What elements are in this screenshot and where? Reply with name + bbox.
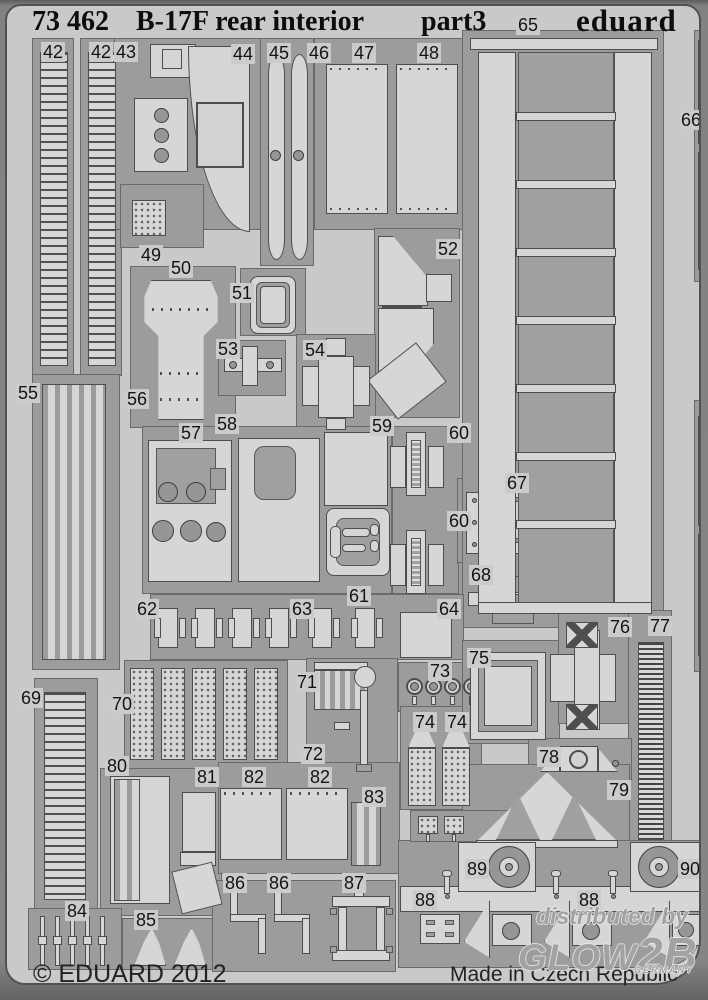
part-number-label: 56 xyxy=(125,389,149,409)
part-number-label: 54 xyxy=(303,340,327,360)
part-number-label: 60 xyxy=(447,511,471,531)
part-number-label: 71 xyxy=(295,672,319,692)
part-number-label: 66 xyxy=(679,110,701,130)
part-number-label: 42 xyxy=(41,42,65,62)
catalog-number: 73 462 xyxy=(32,6,109,38)
part-number-label: 74 xyxy=(413,712,437,732)
brand-logo: eduard xyxy=(576,3,677,39)
part-number-label: 51 xyxy=(230,283,254,303)
part-number-label: 86 xyxy=(267,873,291,893)
part-number-label: 80 xyxy=(105,756,129,776)
part-number-label: 69 xyxy=(19,688,43,708)
part-number-label: 63 xyxy=(290,599,314,619)
part-number-label: 78 xyxy=(537,747,561,767)
part-number-label: 86 xyxy=(223,873,247,893)
watermark-prefix: distributed by xyxy=(536,903,688,930)
part-number-label: 49 xyxy=(139,245,163,265)
part-number-label: 52 xyxy=(436,239,460,259)
part-number-label: 74 xyxy=(445,712,469,732)
part-number-label: 72 xyxy=(301,744,325,764)
part-number-labels: 4242434445464748656649505152535455565758… xyxy=(5,4,701,985)
part-number-label: 75 xyxy=(467,648,491,668)
part-number-label: 44 xyxy=(231,44,255,64)
part-number-label: 59 xyxy=(370,416,394,436)
part-number-label: 82 xyxy=(308,767,332,787)
part-number-label: 57 xyxy=(179,423,203,443)
part-number-label: 64 xyxy=(437,599,461,619)
part-number-label: 82 xyxy=(242,767,266,787)
part-number-label: 83 xyxy=(362,787,386,807)
part-number-label: 68 xyxy=(469,565,493,585)
part-number-label: 87 xyxy=(342,873,366,893)
part-number-label: 85 xyxy=(134,910,158,930)
part-number-label: 90 xyxy=(678,859,701,879)
part-number-label: 79 xyxy=(607,780,631,800)
part-number-label: 42 xyxy=(89,42,113,62)
part-number-label: 55 xyxy=(16,383,40,403)
part-number-label: 46 xyxy=(307,43,331,63)
part-number-label: 67 xyxy=(505,473,529,493)
part-number-label: 48 xyxy=(417,43,441,63)
pe-sheet-scan: 4242434445464748656649505152535455565758… xyxy=(0,0,708,1000)
part-number-label: 81 xyxy=(195,767,219,787)
part-number-label: 60 xyxy=(447,423,471,443)
part-number-label: 77 xyxy=(648,616,672,636)
sheet-part-number: part3 xyxy=(421,6,486,38)
part-number-label: 88 xyxy=(413,890,437,910)
part-number-label: 84 xyxy=(65,901,89,921)
part-number-label: 62 xyxy=(135,599,159,619)
watermark-country: GERMANY xyxy=(634,965,694,975)
sheet-title: B-17F rear interior xyxy=(136,6,364,38)
part-number-label: 43 xyxy=(114,42,138,62)
part-number-label: 47 xyxy=(352,43,376,63)
part-number-label: 45 xyxy=(267,43,291,63)
pe-fret-plate: 4242434445464748656649505152535455565758… xyxy=(5,4,701,985)
part-number-label: 70 xyxy=(110,694,134,714)
part-number-label: 53 xyxy=(216,339,240,359)
part-number-label: 58 xyxy=(215,414,239,434)
part-number-label: 65 xyxy=(516,15,540,35)
part-number-label: 89 xyxy=(465,859,489,879)
copyright-text: © EDUARD 2012 xyxy=(33,960,227,989)
part-number-label: 76 xyxy=(608,617,632,637)
part-number-label: 61 xyxy=(347,586,371,606)
part-number-label: 50 xyxy=(169,258,193,278)
part-number-label: 73 xyxy=(428,661,452,681)
